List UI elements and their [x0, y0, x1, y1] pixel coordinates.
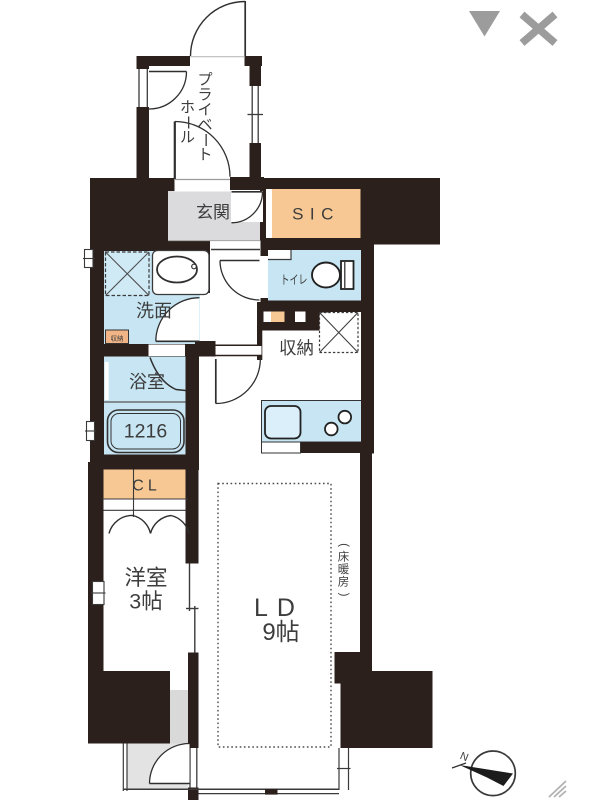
svg-text:3帖: 3帖: [129, 590, 162, 614]
svg-text:収納: 収納: [279, 338, 314, 358]
svg-text:ト: ト: [197, 147, 212, 164]
svg-text:房: 房: [338, 576, 350, 589]
svg-text:ー: ー: [197, 132, 214, 147]
svg-text:CL: CL: [132, 478, 160, 495]
svg-text:): ): [338, 593, 350, 597]
svg-text:9帖: 9帖: [262, 619, 299, 646]
svg-text:洗面: 洗面: [136, 301, 172, 321]
svg-text:ー: ー: [179, 115, 196, 130]
svg-text:玄関: 玄関: [196, 203, 230, 222]
svg-text:(: (: [338, 543, 350, 547]
svg-text:浴室: 浴室: [129, 372, 165, 392]
svg-text:暖: 暖: [338, 563, 350, 576]
svg-text:LD: LD: [254, 594, 304, 622]
svg-text:トイレ: トイレ: [281, 273, 308, 287]
svg-text:1216: 1216: [124, 421, 167, 443]
svg-text:床: 床: [338, 550, 350, 564]
svg-text:ホ: ホ: [180, 99, 195, 116]
svg-text:洋室: 洋室: [124, 566, 167, 590]
svg-text:ベ: ベ: [197, 117, 212, 134]
svg-text:ル: ル: [180, 129, 195, 146]
svg-text:SIC: SIC: [292, 205, 340, 224]
svg-text:収納: 収納: [111, 334, 124, 343]
